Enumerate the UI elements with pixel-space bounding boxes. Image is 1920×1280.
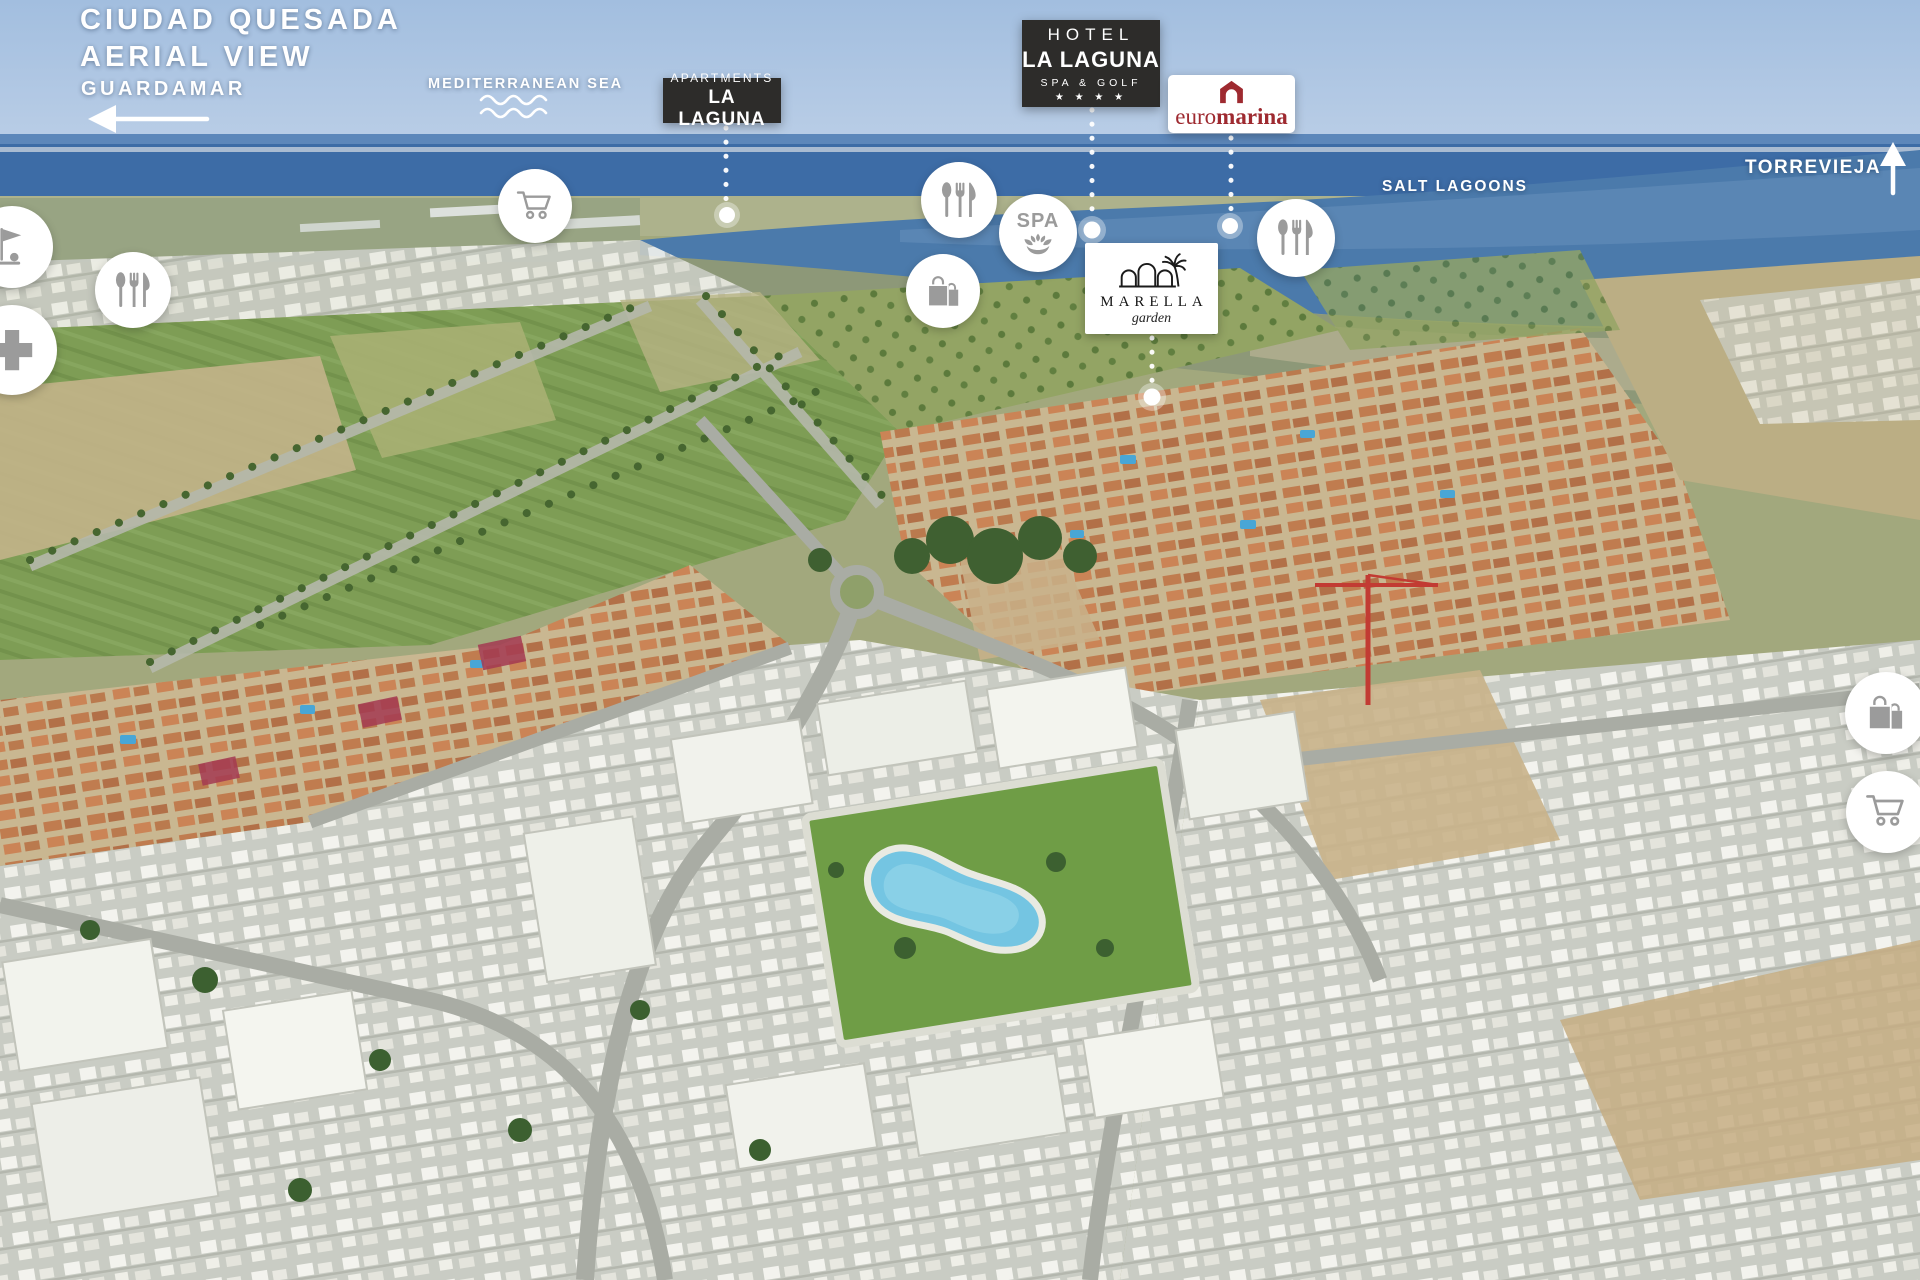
map-pin-euromarina bbox=[1222, 218, 1238, 234]
golf-flag-icon bbox=[0, 223, 36, 271]
page-title: CIUDAD QUESADA AERIAL VIEW bbox=[80, 2, 402, 76]
poi-restaurant-left bbox=[95, 252, 171, 328]
shopping-bag-icon bbox=[1862, 689, 1910, 737]
badge-euromarina: euromarina bbox=[1168, 75, 1295, 133]
poi-restaurant-near-hotel bbox=[921, 162, 997, 238]
poi-shopping-right bbox=[1845, 672, 1920, 754]
badge-apartments-la-laguna: APARTMENTS LA LAGUNA bbox=[663, 78, 781, 123]
hotel-badge-line3: SPA & GOLF bbox=[1022, 77, 1160, 89]
euromarina-wordmark: euromarina bbox=[1175, 105, 1287, 128]
poi-spa: SPA bbox=[999, 194, 1077, 272]
mediterranean-sea-label: MEDITERRANEAN SEA bbox=[428, 76, 623, 92]
torrevieja-arrow-icon bbox=[1880, 142, 1906, 193]
salt-lagoons-label: SALT LAGOONS bbox=[1382, 178, 1528, 196]
aerial-photo: CIUDAD QUESADA AERIAL VIEW GUARDAMAR MED… bbox=[0, 0, 1920, 1280]
euromarina-house-icon bbox=[1218, 80, 1245, 104]
shopping-cart-icon bbox=[1863, 788, 1911, 836]
hotel-badge-line1: HOTEL bbox=[1022, 25, 1160, 45]
restaurant-cutlery-icon bbox=[937, 178, 981, 222]
marella-subtitle: garden bbox=[1132, 311, 1171, 327]
map-pin-hotel bbox=[1084, 222, 1101, 239]
guardamar-arrow-icon bbox=[88, 105, 207, 133]
poi-shopping-near-hotel bbox=[906, 254, 980, 328]
sea-waves-icon bbox=[481, 96, 546, 117]
restaurant-cutlery-icon bbox=[111, 268, 155, 312]
title-line1: CIUDAD QUESADA bbox=[80, 2, 402, 39]
shopping-bag-icon bbox=[922, 270, 965, 313]
map-pin-apartments bbox=[719, 207, 735, 223]
spa-label: SPA bbox=[1017, 211, 1060, 231]
shopping-cart-icon bbox=[514, 185, 557, 228]
badge-hotel-la-laguna: HOTEL LA LAGUNA SPA & GOLF ★ ★ ★ ★ bbox=[1022, 20, 1160, 107]
restaurant-cutlery-icon bbox=[1273, 215, 1318, 260]
poi-supermarket-right bbox=[1846, 771, 1920, 853]
marella-name: MARELLA bbox=[1095, 294, 1208, 311]
hotel-badge-line2: LA LAGUNA bbox=[1022, 47, 1160, 73]
badge-marella-garden: MARELLA garden bbox=[1085, 243, 1218, 334]
map-pin-marella bbox=[1144, 389, 1161, 406]
hotel-stars: ★ ★ ★ ★ bbox=[1022, 92, 1160, 103]
direction-label-guardamar: GUARDAMAR bbox=[81, 78, 246, 101]
euromarina-word-marina: marina bbox=[1216, 104, 1288, 129]
direction-label-torrevieja: TORREVIEJA bbox=[1745, 157, 1881, 179]
apartments-badge-line2: LA LAGUNA bbox=[663, 87, 781, 131]
euromarina-word-euro: euro bbox=[1175, 104, 1216, 129]
poi-restaurant-near-euromarina bbox=[1257, 199, 1335, 277]
spa-lotus-icon bbox=[1020, 233, 1056, 255]
apartments-badge-line1: APARTMENTS bbox=[663, 71, 781, 85]
medical-cross-icon bbox=[0, 324, 38, 376]
marella-arches-palm-icon bbox=[1115, 251, 1189, 291]
poi-supermarket-upper bbox=[498, 169, 572, 243]
spa-badge-content: SPA bbox=[1017, 211, 1060, 255]
title-line2: AERIAL VIEW bbox=[80, 39, 402, 76]
